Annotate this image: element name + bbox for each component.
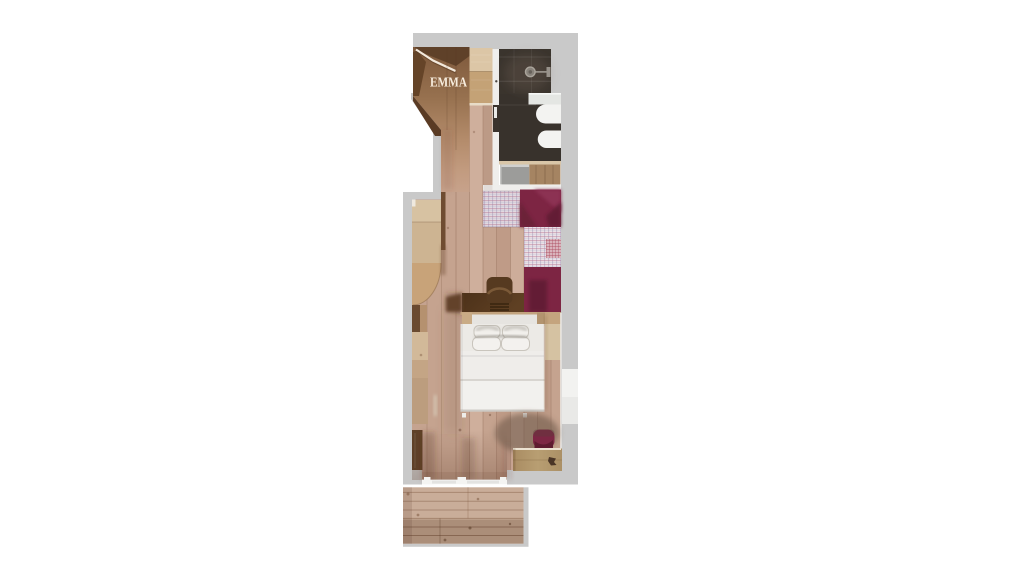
svg-text:EMMA: EMMA [430, 76, 468, 91]
